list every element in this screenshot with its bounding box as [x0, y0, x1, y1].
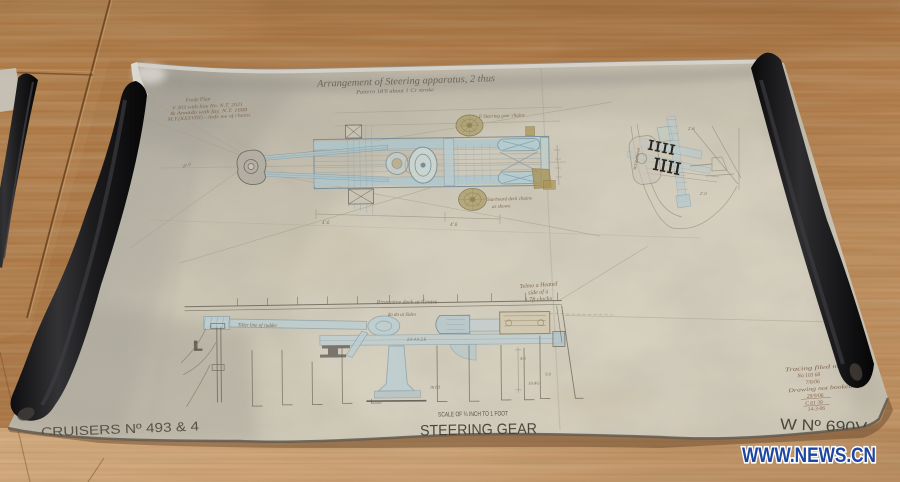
svg-text:7/6/06: 7/6/06	[806, 379, 821, 386]
svg-text:m 83: m 83	[430, 386, 440, 391]
svg-text:as shown: as shown	[492, 204, 511, 210]
svg-text:9.0: 9.0	[545, 372, 551, 377]
svg-text:4'.6: 4'.6	[450, 223, 458, 228]
svg-text:2.6 4.0 2.6: 2.6 4.0 2.6	[407, 337, 427, 342]
svg-text:10.4½: 10.4½	[528, 381, 540, 386]
svg-text:SCALE OF ¾ INCH TO 1 FOOT: SCALE OF ¾ INCH TO 1 FOOT	[438, 410, 508, 418]
svg-text:side of a: side of a	[528, 288, 549, 296]
svg-text:WWW.NEWS.CN: WWW.NEWS.CN	[742, 444, 876, 467]
svg-text:2'.6: 2'.6	[688, 126, 695, 131]
svg-text:4'.6: 4'.6	[322, 221, 330, 226]
svg-text:4.6: 4.6	[520, 356, 526, 361]
svg-text:Tiller line of rudder: Tiller line of rudder	[238, 323, 278, 329]
svg-text:do do at Sides: do do at Sides	[388, 313, 416, 318]
svg-text:Protective deck at Centre: Protective deck at Centre	[376, 300, 438, 307]
svg-text:2'.0: 2'.0	[700, 191, 707, 196]
